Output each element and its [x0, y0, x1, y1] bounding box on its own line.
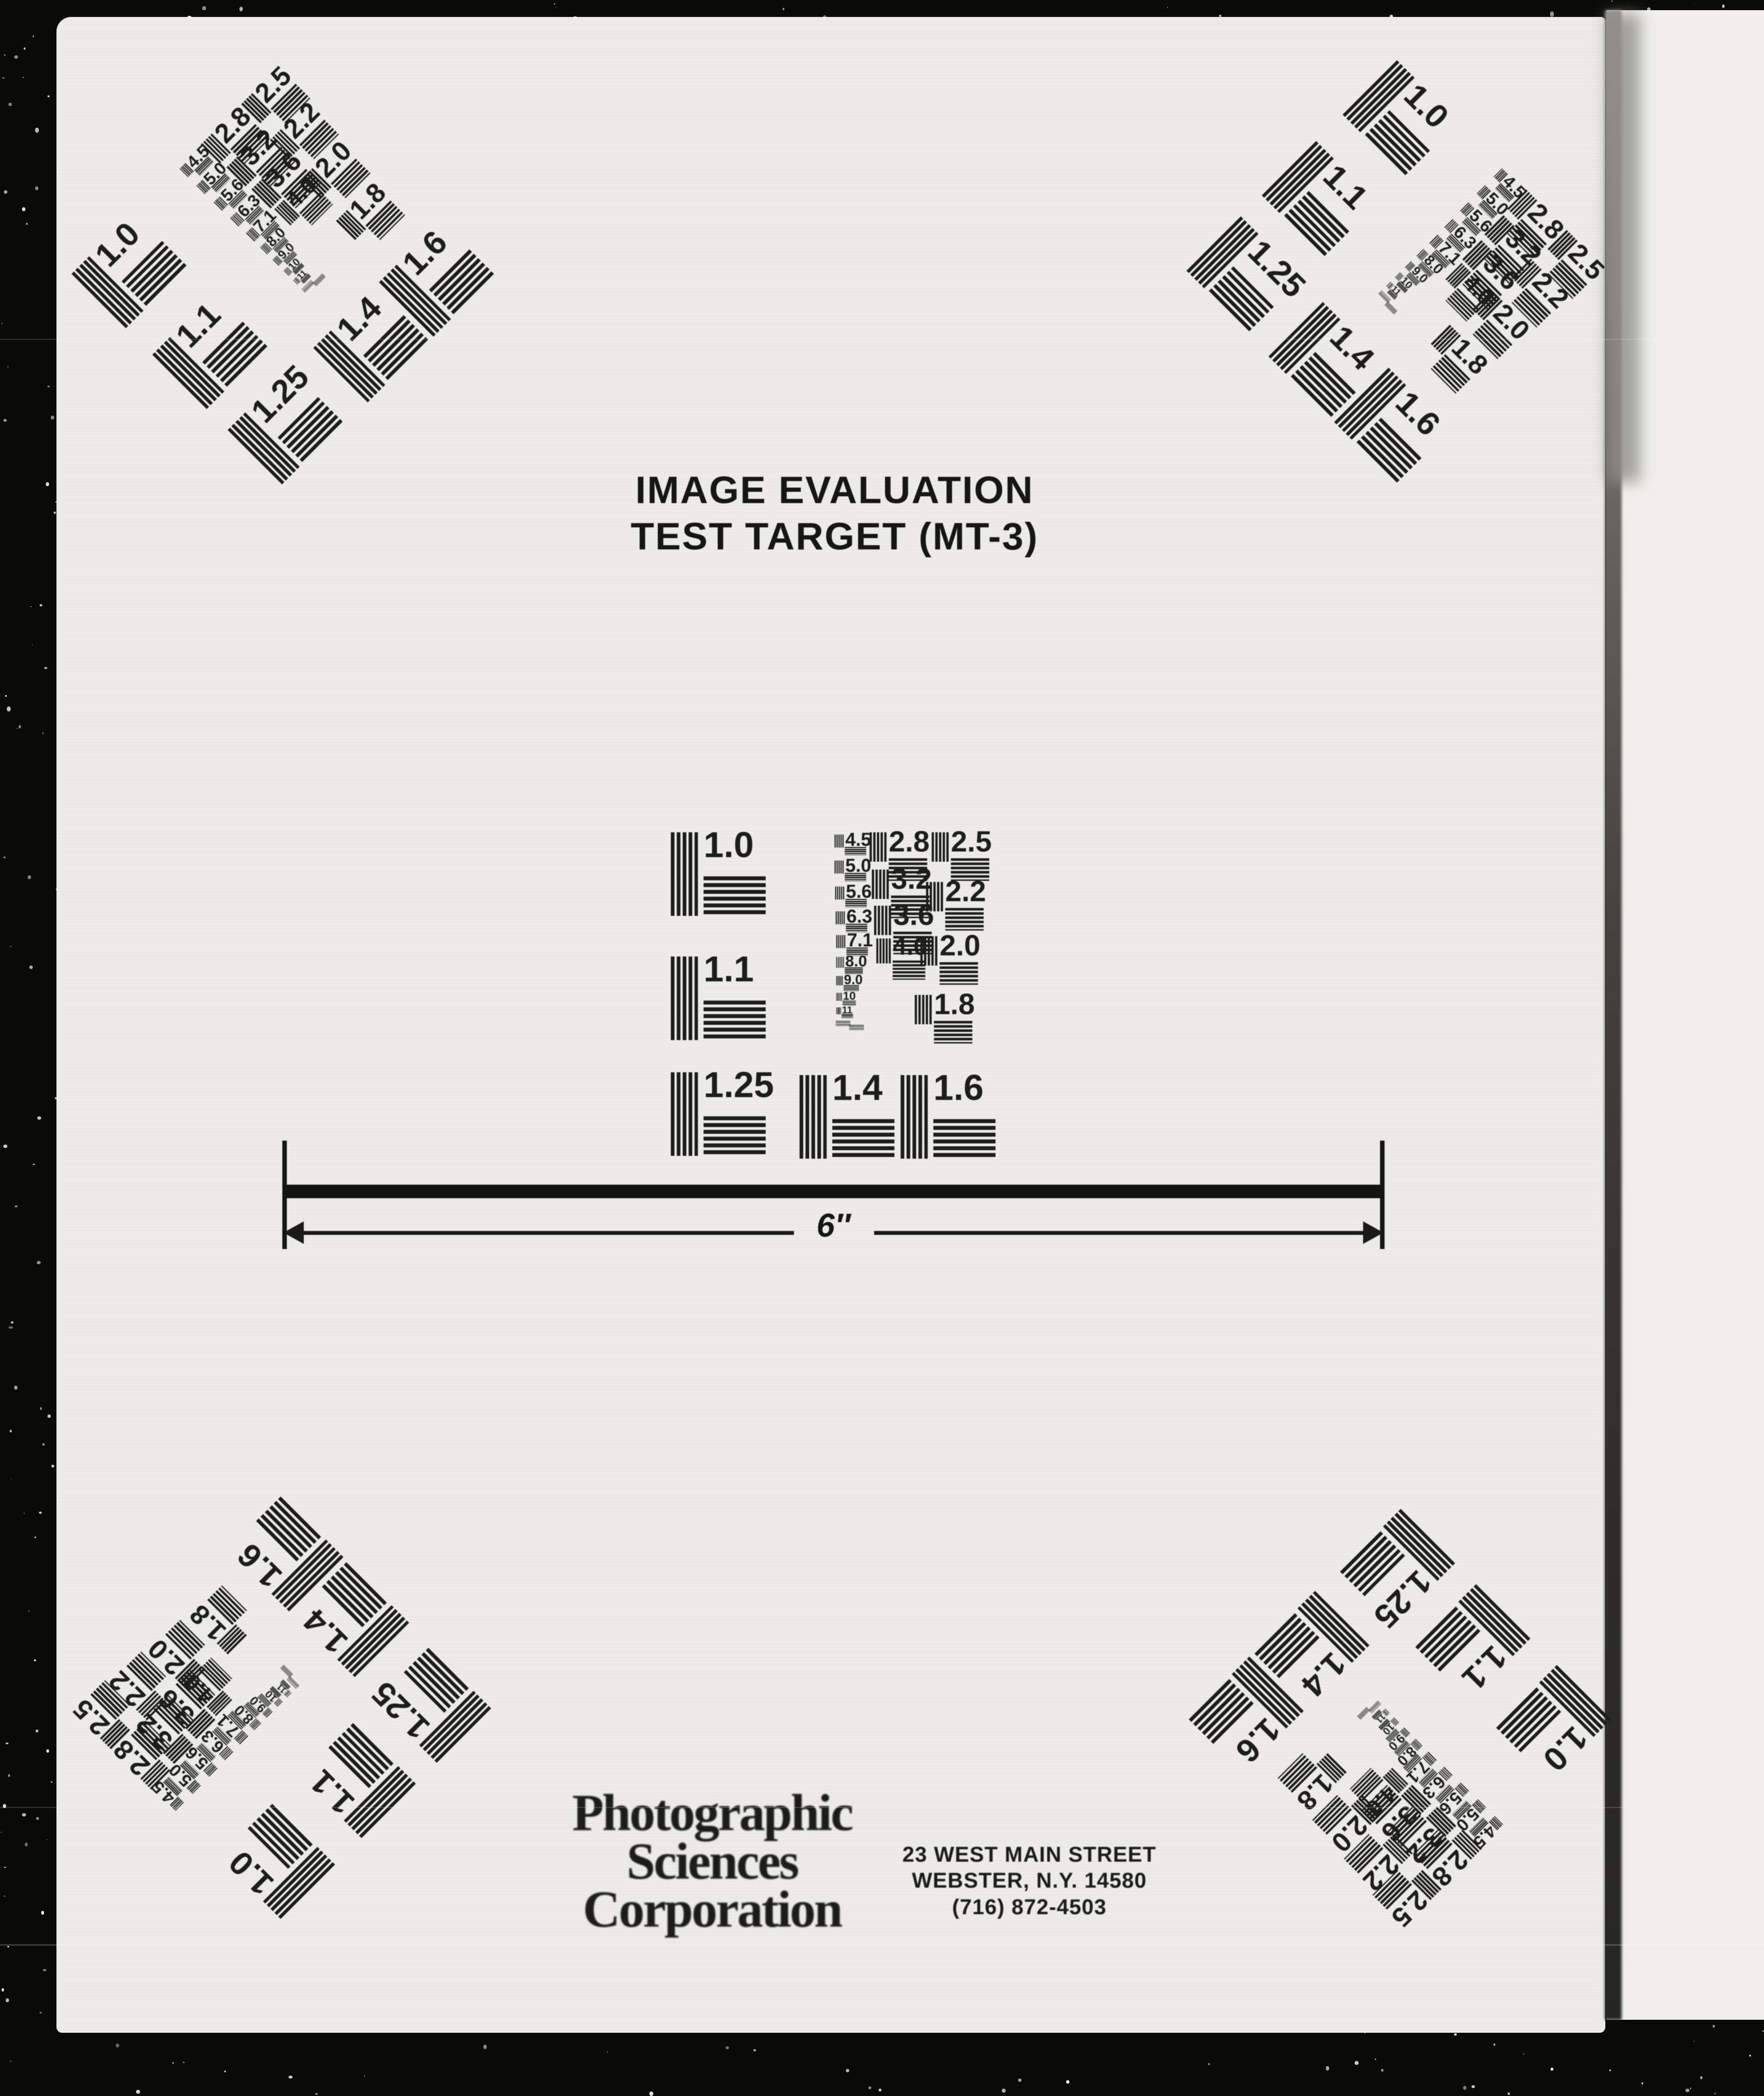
film-speckle	[1018, 2078, 1021, 2082]
film-speckle	[10, 946, 11, 946]
target-label: 8.0	[845, 954, 867, 968]
film-speckle	[1463, 2086, 1466, 2090]
film-speckle	[1066, 2080, 1069, 2084]
vertical-bars	[836, 935, 845, 948]
film-speckle	[6, 1743, 8, 1745]
film-speckle	[54, 512, 56, 514]
film-speckle	[7, 366, 8, 368]
film-speckle	[40, 604, 42, 606]
target-label: 1.25	[704, 1069, 774, 1102]
resolution-target-1.8: 1.8	[915, 995, 977, 1049]
vertical-bars	[920, 936, 937, 966]
film-speckle	[17, 728, 18, 729]
film-speckle	[289, 2076, 292, 2078]
film-speckle	[1381, 2069, 1383, 2072]
film-speckle	[10, 2060, 11, 2062]
vertical-bars	[870, 832, 887, 862]
resolution-target-11: 11	[836, 1007, 855, 1020]
scale-bar-line	[283, 1185, 1383, 1198]
target-label: 1.6	[1231, 1713, 1285, 1767]
film-speckle	[32, 644, 33, 645]
film-speckle	[7, 1946, 10, 1948]
horizontal-bars	[313, 273, 326, 286]
film-speckle	[47, 386, 49, 387]
film-speckle	[649, 2091, 653, 2096]
film-speckle	[11, 1321, 14, 1324]
film-speckle	[34, 1660, 36, 1661]
film-speckle	[42, 1443, 45, 1445]
film-speckle	[3, 857, 6, 858]
film-speckle	[1700, 2076, 1703, 2079]
film-speckle	[1523, 2054, 1524, 2055]
film-speckle	[35, 128, 39, 133]
target-label: 2.0	[940, 933, 980, 959]
film-speckle	[8, 1326, 12, 1329]
film-speckle	[35, 186, 38, 190]
company-address: 23 WEST MAIN STREET WEBSTER, N.Y. 14580 …	[902, 1842, 1156, 1920]
target-label: 1.1	[1318, 160, 1372, 214]
film-speckle	[5, 695, 7, 696]
film-speckle	[556, 7, 557, 8]
title-line-2: TEST TARGET (MT-3)	[609, 514, 1060, 560]
film-speckle	[25, 1842, 28, 1846]
film-speckle	[1609, 2069, 1611, 2071]
film-speckle	[1695, 3, 1696, 4]
film-speckle	[1694, 2041, 1695, 2042]
arrow-line-left	[291, 1231, 794, 1235]
film-speckle	[1690, 2088, 1691, 2089]
film-speckle	[22, 207, 25, 211]
film-speckle	[846, 2069, 849, 2072]
horizontal-bars	[280, 1665, 293, 1678]
film-speckle	[46, 1839, 47, 1840]
resolution-target-speck	[1357, 1707, 1370, 1720]
film-speckle	[364, 2076, 365, 2077]
film-speckle	[24, 47, 26, 50]
film-speckle	[14, 55, 18, 59]
film-speckle	[202, 6, 206, 10]
vertical-bars	[836, 911, 845, 924]
film-speckle	[1364, 2033, 1365, 2034]
film-speckle	[1713, 2025, 1715, 2028]
film-speckle	[8, 103, 12, 106]
target-label: 1.6	[233, 1539, 286, 1592]
horizontal-bars	[849, 1025, 864, 1030]
film-speckle	[4, 1896, 5, 1897]
arrow-line-right	[874, 1231, 1377, 1235]
film-speckle	[1494, 2043, 1495, 2045]
film-speckle	[136, 2090, 140, 2094]
page-gutter-fuzz	[1607, 14, 1640, 482]
film-speckle	[6, 1998, 9, 2002]
film-speckle	[1714, 2093, 1716, 2094]
vertical-bars	[836, 957, 844, 968]
film-speckle	[4, 190, 7, 194]
film-speckle	[40, 2012, 41, 2014]
page-title: IMAGE EVALUATION TEST TARGET (MT-3)	[609, 468, 1060, 560]
film-speckle	[239, 7, 243, 11]
film-speckle	[51, 1781, 53, 1783]
film-speckle	[224, 2071, 226, 2072]
target-label: 10	[843, 991, 856, 1001]
film-speckle	[1355, 2061, 1359, 2065]
horizontal-bars	[704, 876, 766, 916]
target-label: 1.4	[832, 1072, 883, 1104]
target-label: 5.6	[846, 883, 872, 900]
film-speckle	[28, 875, 31, 879]
film-speckle	[879, 2089, 881, 2091]
horizontal-bars	[704, 1001, 766, 1040]
address-line-2: WEBSTER, N.Y. 14580	[902, 1868, 1156, 1894]
target-label: 1.1	[1457, 1641, 1511, 1695]
film-speckle	[42, 732, 43, 734]
film-speckle	[15, 1206, 18, 1208]
horizontal-bars	[945, 908, 984, 931]
resolution-target-speck	[280, 1665, 293, 1678]
target-label: 11	[842, 1006, 852, 1015]
film-speckle	[33, 1164, 36, 1165]
horizontal-bars	[934, 1021, 972, 1043]
film-scratch-line	[0, 1807, 1764, 1808]
film-speckle	[40, 1407, 42, 1410]
film-speckle	[22, 1813, 26, 1816]
film-speckle	[172, 2062, 174, 2064]
vertical-bars	[926, 882, 943, 911]
film-speckle	[34, 1536, 36, 1538]
film-speckle	[554, 3, 555, 5]
film-speckle	[483, 2045, 487, 2049]
address-line-3: (716) 872-4503	[902, 1894, 1156, 1920]
film-speckle	[11, 1479, 12, 1480]
film-speckle	[44, 667, 47, 669]
film-speckle	[116, 2043, 119, 2047]
film-speckle	[1508, 2093, 1510, 2094]
arrowhead-right-icon	[1363, 1221, 1383, 1244]
resolution-target-speck	[836, 1021, 850, 1026]
target-label: 1.1	[305, 1765, 359, 1819]
film-speckle	[1686, 2089, 1689, 2091]
film-speckle	[1472, 2085, 1475, 2088]
film-scratch-line	[0, 339, 1764, 340]
target-label: 1.4	[1296, 1648, 1350, 1701]
film-speckle	[783, 8, 784, 10]
vertical-bars	[836, 1007, 841, 1014]
vertical-bars	[872, 870, 889, 899]
film-speckle	[39, 1512, 42, 1514]
film-speckle	[1375, 2059, 1376, 2059]
film-speckle	[37, 1116, 41, 1120]
resolution-target-1.0: 1.0	[671, 832, 767, 917]
film-speckle	[1722, 5, 1724, 8]
film-speckle	[24, 1513, 25, 1514]
target-label: 1.1	[172, 299, 225, 352]
film-speckle	[36, 1730, 39, 1732]
vertical-bars	[835, 887, 844, 899]
film-speckle	[23, 77, 24, 78]
film-speckle	[7, 706, 11, 711]
company-name: Photographic Sciences Corporation	[554, 1789, 870, 1934]
film-speckle	[1326, 2066, 1329, 2070]
vertical-bars	[836, 993, 842, 1001]
film-speckle	[4, 54, 6, 56]
film-speckle	[2, 323, 3, 324]
vertical-bars	[671, 832, 698, 916]
film-speckle	[43, 1969, 46, 1971]
vertical-bars	[874, 906, 891, 935]
film-speckle	[46, 482, 49, 486]
film-speckle	[28, 1610, 29, 1611]
film-speckle	[868, 2086, 871, 2089]
target-label: 7.1	[847, 932, 873, 949]
target-label: 1.8	[934, 992, 975, 1018]
target-label: 2.2	[945, 879, 986, 905]
target-label: 9.0	[844, 973, 863, 985]
film-speckle	[1762, 2031, 1764, 2032]
film-speckle	[1641, 2082, 1643, 2085]
arrowhead-left-icon	[283, 1221, 304, 1244]
film-speckle	[51, 1465, 54, 1468]
target-label: 1.1	[704, 953, 754, 986]
film-speckle	[183, 2062, 185, 2063]
target-label: 2.5	[951, 829, 992, 855]
film-speckle	[8, 1774, 10, 1777]
target-label: 5.0	[845, 857, 871, 874]
target-label: 1.4	[299, 1604, 352, 1658]
test-pattern-center: 1.01.11.251.41.64.55.05.66.37.18.09.0101…	[671, 832, 995, 1182]
horizontal-bars	[1357, 1707, 1370, 1720]
film-speckle	[30, 606, 32, 607]
film-speckle	[1002, 2089, 1005, 2093]
resolution-target-2.2: 2.2	[926, 882, 988, 936]
film-speckle	[14, 1386, 17, 1390]
vertical-bars	[671, 957, 698, 1040]
film-speckle	[41, 1911, 44, 1914]
horizontal-bars	[1385, 302, 1398, 315]
film-speckle	[726, 2046, 729, 2049]
company-line-1: Photographic	[554, 1789, 870, 1837]
resolution-target-1.1: 1.1	[671, 957, 767, 1041]
target-label: 6.3	[846, 908, 872, 925]
film-speckle	[1, 1832, 2, 1833]
film-speckle	[29, 966, 32, 969]
film-speckle	[10, 1430, 12, 1433]
target-label: 4.5	[845, 831, 871, 848]
company-line-3: Corporation	[554, 1885, 870, 1934]
film-speckle	[19, 725, 21, 728]
film-speckle	[46, 1749, 49, 1753]
film-speckle	[4, 1867, 6, 1868]
film-speckle	[607, 2051, 608, 2053]
film-frame: 1.01.11.251.41.64.55.05.66.37.18.09.0101…	[0, 0, 1764, 2096]
target-label: 1.0	[704, 829, 754, 862]
film-speckle	[1612, 1, 1613, 2]
film-speckle	[1550, 11, 1554, 16]
address-line-1: 23 WEST MAIN STREET	[902, 1842, 1156, 1868]
film-speckle	[1551, 2068, 1553, 2071]
resolution-target-speck	[1385, 302, 1398, 315]
film-speckle	[1454, 2033, 1457, 2036]
target-label: 1.6	[398, 226, 452, 280]
resolution-target-2.0: 2.0	[920, 936, 983, 990]
film-speckle	[37, 1261, 41, 1264]
resolution-target-speck	[313, 273, 326, 286]
horizontal-bars	[836, 1021, 850, 1026]
scale-bar: 6″	[282, 1141, 1385, 1251]
film-speckle	[47, 95, 50, 97]
scale-bar-label: 6″	[794, 1209, 873, 1242]
film-scratch-line	[0, 1944, 1764, 1946]
film-speckle	[33, 36, 34, 37]
vertical-bars	[915, 995, 932, 1024]
horizontal-bars	[940, 962, 978, 985]
target-label: 1.4	[333, 292, 386, 346]
vertical-bars	[835, 835, 844, 848]
film-speckle	[47, 1414, 51, 1418]
film-speckle	[753, 2049, 756, 2051]
target-label: 2.8	[889, 829, 929, 855]
film-scan-background: { "document": { "title": { "line1": "IMA…	[0, 0, 1764, 2096]
title-line-1: IMAGE EVALUATION	[609, 468, 1060, 514]
vertical-bars	[932, 832, 949, 862]
target-label: 1.4	[1325, 321, 1379, 375]
target-label: 1.6	[1391, 387, 1444, 440]
film-speckle	[315, 2093, 318, 2095]
film-speckle	[3, 419, 7, 422]
target-label: 1.6	[933, 1072, 984, 1104]
film-speckle	[2, 77, 5, 78]
film-speckle	[36, 1817, 38, 1820]
company-line-2: Sciences	[554, 1837, 870, 1886]
vertical-bars	[836, 976, 843, 985]
vertical-bars	[876, 938, 891, 963]
film-speckle	[1208, 2063, 1210, 2065]
resolution-target-speck	[849, 1025, 864, 1030]
film-speckle	[1167, 7, 1168, 8]
film-speckle	[1749, 2055, 1751, 2056]
film-speckle	[3, 1145, 7, 1147]
film-speckle	[51, 416, 54, 420]
vertical-bars	[835, 861, 844, 874]
film-speckle	[2, 1988, 4, 1992]
film-speckle	[26, 223, 28, 225]
